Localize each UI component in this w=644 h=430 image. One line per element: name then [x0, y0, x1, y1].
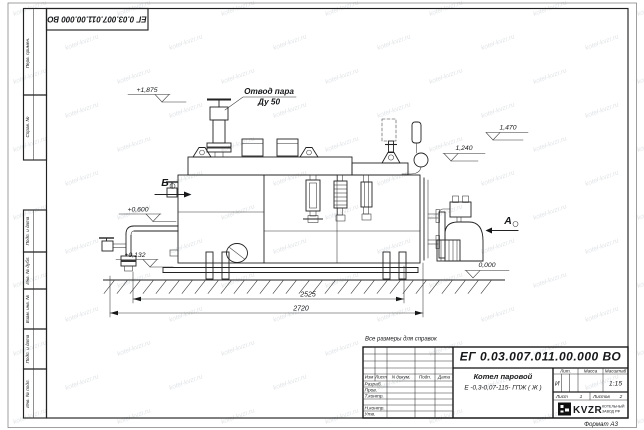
svg-text:kotel-kvzr.ru: kotel-kvzr.ru — [636, 67, 644, 86]
elevation-mark: +0,132 — [116, 252, 173, 267]
svg-text:kotel-kvzr.ru: kotel-kvzr.ru — [272, 169, 308, 188]
margin-stamp: Взам. инв. № — [24, 289, 47, 329]
view-letter: А — [503, 215, 512, 227]
view-marker-a: А — [486, 215, 519, 234]
svg-text:kotel-kvzr.ru: kotel-kvzr.ru — [12, 339, 48, 358]
format-label: Формат А3 — [584, 421, 618, 428]
doc-number: ЕГ 0.03.007.011.00.000 ВО — [460, 350, 622, 364]
svg-text:kotel-kvzr.ru: kotel-kvzr.ru — [12, 67, 48, 86]
svg-text:kotel-kvzr.ru: kotel-kvzr.ru — [428, 203, 464, 222]
svg-text:kotel-kvzr.ru: kotel-kvzr.ru — [220, 203, 256, 222]
svg-text:kotel-kvzr.ru: kotel-kvzr.ru — [376, 101, 412, 120]
svg-text:kotel-kvzr.ru: kotel-kvzr.ru — [168, 237, 204, 256]
manhole — [227, 244, 248, 263]
scale-header: Масштаб — [605, 369, 627, 374]
svg-text:kotel-kvzr.ru: kotel-kvzr.ru — [636, 407, 644, 426]
svg-text:kotel-kvzr.ru: kotel-kvzr.ru — [584, 237, 620, 256]
row-utv: Утв. — [365, 412, 376, 418]
svg-text:kotel-kvzr.ru: kotel-kvzr.ru — [376, 237, 412, 256]
svg-text:kotel-kvzr.ru: kotel-kvzr.ru — [272, 373, 308, 392]
svg-text:kotel-kvzr.ru: kotel-kvzr.ru — [636, 339, 644, 358]
svg-text:kotel-kvzr.ru: kotel-kvzr.ru — [636, 203, 644, 222]
col-izm: Изм — [365, 375, 374, 380]
svg-text:kotel-kvzr.ru: kotel-kvzr.ru — [64, 33, 100, 52]
svg-text:kotel-kvzr.ru: kotel-kvzr.ru — [324, 203, 360, 222]
svg-text:kotel-kvzr.ru: kotel-kvzr.ru — [12, 203, 48, 222]
svg-text:kotel-kvzr.ru: kotel-kvzr.ru — [116, 339, 152, 358]
safety-valve — [382, 119, 400, 163]
svg-text:kotel-kvzr.ru: kotel-kvzr.ru — [480, 237, 516, 256]
elevation-value: 0,000 — [478, 262, 495, 269]
svg-text:kotel-kvzr.ru: kotel-kvzr.ru — [64, 237, 100, 256]
stamp-label: Справ. № — [25, 117, 30, 138]
svg-text:kotel-kvzr.ru: kotel-kvzr.ru — [64, 305, 100, 324]
margin-stamp: Перв. примен. — [24, 9, 47, 96]
svg-text:kotel-kvzr.ru: kotel-kvzr.ru — [480, 101, 516, 120]
elevation-mark: 1,470 — [486, 124, 528, 140]
svg-text:kotel-kvzr.ru: kotel-kvzr.ru — [272, 237, 308, 256]
svg-text:kotel-kvzr.ru: kotel-kvzr.ru — [532, 271, 568, 290]
svg-text:kotel-kvzr.ru: kotel-kvzr.ru — [324, 135, 360, 154]
sheets-label: Листов — [592, 394, 610, 399]
svg-text:kotel-kvzr.ru: kotel-kvzr.ru — [532, 135, 568, 154]
scale-value: 1:15 — [609, 381, 622, 388]
svg-text:kotel-kvzr.ru: kotel-kvzr.ru — [272, 33, 308, 52]
svg-text:kotel-kvzr.ru: kotel-kvzr.ru — [116, 67, 152, 86]
row-prov: Пров. — [365, 388, 378, 394]
svg-text:kotel-kvzr.ru: kotel-kvzr.ru — [480, 305, 516, 324]
svg-text:kotel-kvzr.ru: kotel-kvzr.ru — [584, 101, 620, 120]
svg-text:kotel-kvzr.ru: kotel-kvzr.ru — [12, 271, 48, 290]
svg-text:kotel-kvzr.ru: kotel-kvzr.ru — [168, 33, 204, 52]
elevation-value: +0,132 — [125, 252, 146, 259]
blueprint-page: kotel-kvzr.rukotel-kvzr.rukotel-kvzr.ruk… — [0, 0, 644, 430]
svg-text:kotel-kvzr.ru: kotel-kvzr.ru — [64, 169, 100, 188]
col-dokum: N докум. — [392, 375, 411, 380]
margin-stamp: Справ. № — [24, 95, 47, 160]
svg-text:kotel-kvzr.ru: kotel-kvzr.ru — [220, 135, 256, 154]
svg-text:kotel-kvzr.ru: kotel-kvzr.ru — [64, 101, 100, 120]
pressure-gauge-siphon — [402, 122, 428, 174]
svg-text:kotel-kvzr.ru: kotel-kvzr.ru — [636, 0, 644, 18]
svg-text:kotel-kvzr.ru: kotel-kvzr.ru — [428, 407, 464, 426]
stamp-label: Инв. № подл. — [25, 379, 30, 408]
elevation-value: +0,600 — [128, 206, 149, 213]
svg-text:kotel-kvzr.ru: kotel-kvzr.ru — [376, 33, 412, 52]
stamp-label: Взам. инв. № — [25, 295, 30, 323]
elevation-mark: 1,240 — [443, 145, 485, 161]
dimension-2525: 2525 — [133, 266, 404, 303]
view-letter: Б — [161, 177, 169, 189]
svg-text:kotel-kvzr.ru: kotel-kvzr.ru — [584, 33, 620, 52]
svg-text:kotel-kvzr.ru: kotel-kvzr.ru — [480, 33, 516, 52]
svg-text:kotel-kvzr.ru: kotel-kvzr.ru — [116, 135, 152, 154]
svg-text:kotel-kvzr.ru: kotel-kvzr.ru — [324, 67, 360, 86]
logo-text: KVZR — [573, 405, 603, 416]
elevation-mark: +0,600 — [119, 206, 176, 221]
col-list: Лист — [374, 375, 387, 380]
sheet-value: 1 — [580, 394, 583, 400]
dimension-2720: 2720 — [110, 263, 423, 317]
svg-text:kotel-kvzr.ru: kotel-kvzr.ru — [584, 305, 620, 324]
company-logo: KVZR КОТЕЛЬНЫЙ ЗАВОД РФ — [558, 403, 625, 417]
svg-text:kotel-kvzr.ru: kotel-kvzr.ru — [220, 67, 256, 86]
boiler-side-view: Отвод пара Ду 50 — [99, 87, 528, 317]
elevation-mark: 0,000 — [465, 262, 509, 278]
sheets-value: 2 — [619, 394, 623, 400]
svg-text:kotel-kvzr.ru: kotel-kvzr.ru — [12, 135, 48, 154]
drawing-canvas: kotel-kvzr.rukotel-kvzr.rukotel-kvzr.ruk… — [0, 0, 644, 430]
svg-text:kotel-kvzr.ru: kotel-kvzr.ru — [532, 203, 568, 222]
svg-text:kotel-kvzr.ru: kotel-kvzr.ru — [168, 373, 204, 392]
stamp-label: Инв. № дубл. — [25, 256, 30, 284]
sheet-label: Лист — [555, 394, 568, 399]
col-data: Дата — [437, 375, 451, 380]
svg-text:kotel-kvzr.ru: kotel-kvzr.ru — [12, 407, 48, 426]
reference-note: Все размеры для справок — [365, 337, 438, 343]
supports-skid — [163, 252, 418, 279]
stamp-label: Подп. и дата — [25, 216, 30, 245]
svg-text:kotel-kvzr.ru: kotel-kvzr.ru — [220, 407, 256, 426]
company-name-1: КОТЕЛЬНЫЙ — [602, 405, 625, 409]
row-nkontr: Н.контр. — [365, 406, 385, 412]
elevation-value: 1,240 — [455, 145, 472, 152]
steam-outlet-label: Отвод пара — [244, 87, 294, 96]
svg-text:kotel-kvzr.ru: kotel-kvzr.ru — [324, 339, 360, 358]
steam-outlet-dn: Ду 50 — [257, 98, 280, 107]
svg-text:kotel-kvzr.ru: kotel-kvzr.ru — [64, 373, 100, 392]
product-name: Котел паровой — [474, 372, 533, 381]
svg-text:kotel-kvzr.ru: kotel-kvzr.ru — [376, 169, 412, 188]
lit-header: Лит. — [559, 369, 571, 374]
svg-text:kotel-kvzr.ru: kotel-kvzr.ru — [324, 407, 360, 426]
mass-header: Масса — [584, 369, 598, 374]
svg-text:kotel-kvzr.ru: kotel-kvzr.ru — [584, 169, 620, 188]
row-tkontr: Т.контр. — [365, 394, 384, 400]
elevation-value: 1,470 — [499, 124, 516, 131]
margin-stamp: Инв. № дубл. — [24, 252, 47, 289]
svg-text:kotel-kvzr.ru: kotel-kvzr.ru — [116, 407, 152, 426]
dim-text: 2720 — [292, 305, 309, 312]
doc-number-rotated: ЕГ 0.03.007.011.00.000 ВО — [47, 15, 147, 24]
svg-text:kotel-kvzr.ru: kotel-kvzr.ru — [220, 339, 256, 358]
svg-text:kotel-kvzr.ru: kotel-kvzr.ru — [168, 305, 204, 324]
elevation-mark: +1,875 — [128, 87, 186, 102]
lit-value: И — [555, 381, 560, 388]
product-designation: Е -0,3-0,07-115- ГПЖ ( Ж ) — [464, 385, 541, 392]
col-podp: Подп. — [419, 375, 431, 380]
stamp-label: Подп. и дата — [25, 334, 30, 363]
svg-text:kotel-kvzr.ru: kotel-kvzr.ru — [168, 169, 204, 188]
svg-text:kotel-kvzr.ru: kotel-kvzr.ru — [480, 169, 516, 188]
svg-text:kotel-kvzr.ru: kotel-kvzr.ru — [636, 271, 644, 290]
dim-text: 2525 — [299, 291, 316, 298]
row-razrab: Разраб. — [365, 382, 382, 388]
elevation-value: +1,875 — [137, 87, 158, 94]
svg-text:kotel-kvzr.ru: kotel-kvzr.ru — [376, 305, 412, 324]
svg-text:kotel-kvzr.ru: kotel-kvzr.ru — [168, 101, 204, 120]
svg-text:kotel-kvzr.ru: kotel-kvzr.ru — [636, 135, 644, 154]
svg-text:kotel-kvzr.ru: kotel-kvzr.ru — [428, 67, 464, 86]
svg-text:kotel-kvzr.ru: kotel-kvzr.ru — [532, 67, 568, 86]
stamp-label: Перв. примен. — [25, 38, 30, 69]
company-name-2: ЗАВОД РФ — [602, 410, 620, 414]
